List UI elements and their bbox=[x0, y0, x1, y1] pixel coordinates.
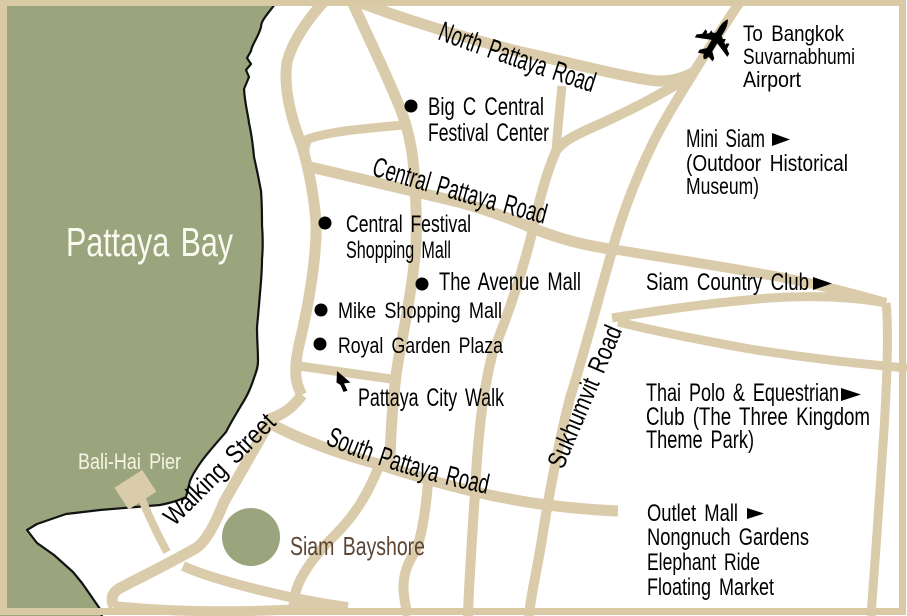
svg-text:Elephant Ride: Elephant Ride bbox=[647, 549, 760, 576]
svg-text:Mike Shopping Mall: Mike Shopping Mall bbox=[338, 298, 502, 323]
svg-text:To Bangkok: To Bangkok bbox=[743, 21, 845, 46]
svg-text:Siam Bayshore: Siam Bayshore bbox=[290, 531, 425, 561]
svg-text:Suvarnabhumi: Suvarnabhumi bbox=[743, 44, 855, 69]
svg-text:Pattaya City Walk: Pattaya City Walk bbox=[358, 384, 504, 412]
svg-text:Outlet Mall: Outlet Mall bbox=[647, 500, 738, 527]
svg-text:Mini Siam: Mini Siam bbox=[686, 125, 765, 153]
svg-text:Shopping Mall: Shopping Mall bbox=[346, 237, 451, 264]
svg-text:Airport: Airport bbox=[743, 67, 801, 92]
svg-text:Big C Central: Big C Central bbox=[428, 93, 544, 121]
svg-text:Bali-Hai Pier: Bali-Hai Pier bbox=[78, 449, 181, 474]
svg-text:Pattaya Bay: Pattaya Bay bbox=[66, 219, 233, 265]
svg-text:Theme Park): Theme Park) bbox=[646, 426, 754, 454]
svg-text:Museum): Museum) bbox=[686, 173, 759, 199]
svg-text:Festival Center: Festival Center bbox=[428, 119, 549, 147]
svg-text:Nongnuch Gardens: Nongnuch Gardens bbox=[647, 524, 809, 551]
svg-text:Royal Garden Plaza: Royal Garden Plaza bbox=[338, 333, 504, 358]
svg-text:Siam Country Club: Siam Country Club bbox=[646, 269, 809, 296]
svg-text:Floating Market: Floating Market bbox=[647, 574, 774, 601]
svg-text:The Avenue Mall: The Avenue Mall bbox=[439, 268, 581, 296]
svg-text:Central Festival: Central Festival bbox=[346, 211, 471, 238]
